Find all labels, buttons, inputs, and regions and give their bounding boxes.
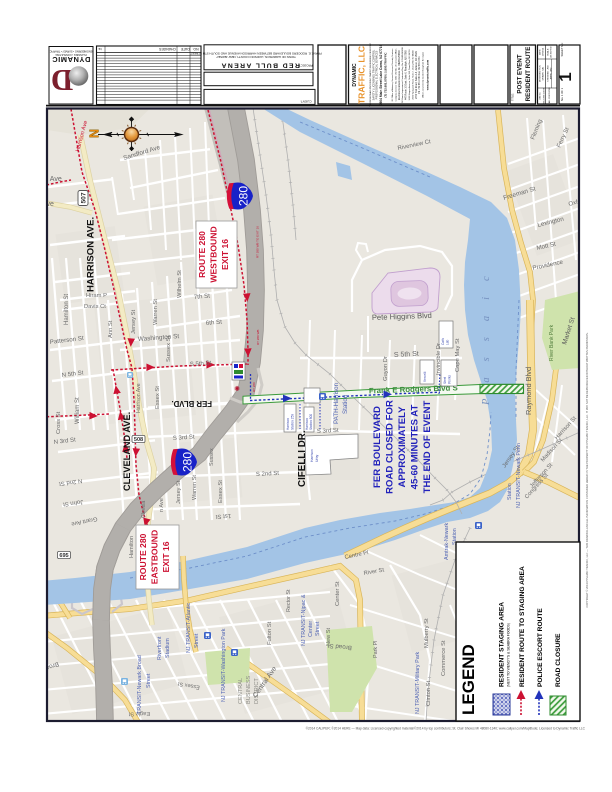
svg-text:Hiram P: Hiram P	[86, 293, 107, 299]
svg-text:THE END OF EVENT: THE END OF EVENT	[422, 400, 433, 493]
svg-text:POST EVENT: POST EVENT	[517, 54, 524, 93]
svg-text:n Ave: n Ave	[159, 498, 165, 512]
svg-text:TRAFFIC, LLC: TRAFFIC, LLC	[357, 46, 367, 104]
svg-text:Jersey St: Jersey St	[176, 480, 182, 504]
svg-text:River Bank Park: River Bank Park	[549, 324, 555, 361]
svg-text:Center: Center	[308, 621, 314, 637]
svg-text:NJ TRANSIT-Atlantic: NJ TRANSIT-Atlantic	[186, 602, 192, 653]
svg-text:280: 280	[236, 186, 250, 206]
svg-text:(T) 732.681.0760 | 1.800.TRA: (T) 732.681.0760 | 1.800.TRAFFIC	[384, 52, 388, 98]
svg-text:©2014 CALIPER; ©2014 HERE —: ©2014 CALIPER; ©2014 HERE — Map data: Li…	[306, 727, 586, 731]
svg-text:Fulton St: Fulton St	[267, 621, 273, 645]
svg-text:Vercelli: Vercelli	[423, 371, 427, 382]
svg-text:Park Pl: Park Pl	[373, 641, 379, 658]
svg-text:PATH-Harrison: PATH-Harrison	[333, 382, 340, 424]
svg-text:NJ Home Improvement Contractor: NJ Home Improvement Contractor Reg. No. …	[401, 46, 404, 102]
svg-text:CENTRAL: CENTRAL	[238, 678, 244, 704]
svg-text:FRANK E. RODGERS BOULEVARD BET: FRANK E. RODGERS BOULEVARD BETWEEN HARRI…	[190, 51, 322, 55]
svg-text:Street: Street	[315, 621, 321, 636]
svg-text:2013-089-C0078: 2013-089-C0078	[544, 87, 546, 104]
svg-text:Cross St: Cross St	[56, 411, 62, 434]
svg-text:Raymond Blvd: Raymond Blvd	[524, 367, 533, 415]
svg-text:Station 259: Station 259	[291, 414, 295, 430]
svg-text:APPROXIMATELY: APPROXIMATELY	[397, 406, 408, 488]
svg-text:S 3rd St: S 3rd St	[317, 428, 339, 435]
svg-text:DRAWN: SAL: DRAWN: SAL	[542, 66, 545, 80]
svg-text:S 5th St: S 5th St	[394, 351, 419, 359]
svg-text:RT 280 WB: RT 280 WB	[256, 330, 260, 345]
svg-text:Essex St: Essex St	[155, 386, 161, 409]
svg-text:Davis Ct: Davis Ct	[84, 304, 106, 310]
svg-text:RESIDENT STAGING AREA: RESIDENT STAGING AREA	[499, 602, 506, 687]
svg-text:Eagle St: Eagle St	[128, 710, 150, 717]
svg-text:Ann St: Ann St	[108, 320, 114, 338]
svg-text:NJ TRANSIT-Washington Park: NJ TRANSIT-Washington Park	[221, 628, 227, 702]
svg-text:POLICE ESCORT ROUTE: POLICE ESCORT ROUTE	[537, 608, 544, 687]
svg-text:Offices conveniently located t: Offices conveniently located throughout …	[422, 51, 425, 98]
svg-text:William St: William St	[75, 397, 81, 424]
svg-text:7th St: 7th St	[194, 293, 211, 301]
svg-text:FER BLVD.: FER BLVD.	[171, 399, 212, 408]
svg-text:Ph. 732.681.0760 Fax 732.681.: Ph. 732.681.0760 Fax 732.681.0761	[419, 56, 421, 94]
svg-text:Hamilton St: Hamilton St	[64, 294, 70, 325]
svg-text:EASTBOUND: EASTBOUND	[150, 530, 160, 584]
svg-text:Clinton St: Clinton St	[426, 680, 432, 706]
svg-text:ROUTE 280: ROUTE 280	[197, 231, 207, 278]
svg-text:No. 1 OF 1: No. 1 OF 1	[560, 87, 564, 101]
svg-text:Hamilton: Hamilton	[129, 536, 135, 558]
svg-text:ROAD CLOSED FOR: ROAD CLOSED FOR	[385, 400, 396, 494]
svg-text:Street: Street	[194, 633, 200, 648]
svg-text:RED BULL ARENA: RED BULL ARENA	[220, 62, 300, 69]
svg-text:EXIT 16: EXIT 16	[161, 541, 171, 572]
svg-text:JOB No:: JOB No:	[539, 91, 541, 100]
svg-text:TRANSIT-Newark Broad: TRANSIT-Newark Broad	[137, 655, 143, 714]
svg-text:(NEXT TO WENDY'S & SEABRA FOOD: (NEXT TO WENDY'S & SEABRA FOODS)	[507, 623, 511, 687]
svg-text:RESIDENT ROUTE TO STAGING AREA: RESIDENT ROUTE TO STAGING AREA	[519, 566, 526, 687]
svg-text:Center St: Center St	[335, 581, 341, 606]
svg-text:CLEVELAND AVE.: CLEVELAND AVE.	[122, 412, 132, 491]
svg-text:NJ TRANSIT-Newark Penn: NJ TRANSIT-Newark Penn	[516, 443, 522, 508]
svg-text:CLIENT:: CLIENT:	[300, 99, 311, 103]
svg-text:PLANNING • CONSULTING: PLANNING • CONSULTING	[55, 53, 86, 56]
svg-text:Station: Station	[507, 483, 513, 500]
svg-text:507: 507	[81, 192, 88, 203]
svg-text:Harrison: Harrison	[286, 418, 290, 430]
svg-text:Amtrak-Newark: Amtrak-Newark	[444, 523, 450, 560]
svg-text:Sussex: Sussex	[209, 448, 215, 466]
svg-text:Wilhelm St: Wilhelm St	[177, 270, 183, 298]
svg-text:CAD: C0078-PER: CAD: C0078-PER	[548, 87, 551, 105]
svg-text:AS NOTED: AS NOTED	[550, 46, 553, 58]
svg-text:Clevela: Clevela	[141, 501, 147, 518]
svg-text:Cape May St: Cape May St	[455, 338, 461, 372]
svg-text:✺: ✺	[234, 385, 240, 393]
svg-text:RESIDENT ROUTE: RESIDENT ROUTE	[525, 47, 532, 102]
svg-text:Riverfront: Riverfront	[157, 636, 163, 660]
svg-text:ROUTE 280: ROUTE 280	[138, 533, 148, 580]
svg-text:HARRISON AVE.: HARRISON AVE.	[86, 217, 97, 292]
svg-text:Jersey St: Jersey St	[131, 309, 137, 334]
svg-text:DISTRICT: DISTRICT	[254, 678, 260, 704]
svg-text:Commerce St: Commerce St	[441, 640, 447, 676]
svg-text:Warren St: Warren St	[192, 475, 198, 500]
svg-text:RT 280 WB TO EXIT 16: RT 280 WB TO EXIT 16	[256, 226, 260, 258]
svg-text:Works: Works	[448, 375, 452, 384]
svg-text:Sussex St: Sussex St	[166, 336, 172, 362]
svg-text:1904 Main Street Lake Como,: 1904 Main Street Lake Como, NJ 07719	[379, 44, 383, 105]
svg-text:S 2nd St: S 2nd St	[256, 471, 280, 478]
svg-text:1: 1	[556, 72, 575, 81]
svg-text:Warren St: Warren St	[153, 299, 159, 325]
svg-text:DESIGNED: MJC: DESIGNED: MJC	[539, 65, 541, 83]
svg-text:N: N	[88, 129, 102, 138]
svg-text:Passaic: Passaic	[481, 260, 492, 406]
svg-text:TITLE:: TITLE:	[511, 93, 515, 101]
svg-text:TOWN OF HARRISON, HUDSON COUNT: TOWN OF HARRISON, HUDSON COUNTY, NEW JER…	[216, 55, 296, 59]
svg-text:Harrison: Harrison	[310, 449, 314, 462]
svg-text:Invincible Dr: Invincible Dr	[436, 343, 442, 375]
svg-text:447 Route 10 East, Suite 6, Ra: 447 Route 10 East, Suite 6, Randolph, NJ…	[405, 49, 408, 99]
svg-text:ENGINEERING • SURVEY • TRAFFIC: ENGINEERING • SURVEY • TRAFFIC	[49, 50, 92, 53]
svg-text:SHEET No:: SHEET No:	[560, 42, 564, 56]
svg-text:Lab: Lab	[446, 339, 450, 345]
svg-text:Urby: Urby	[315, 455, 319, 462]
svg-text:1433 Hooper Avenue, Suite 335,: 1433 Hooper Avenue, Suite 335, Toms Rive…	[408, 49, 411, 101]
svg-text:LEGEND: LEGEND	[459, 644, 478, 715]
svg-text:Street: Street	[146, 673, 152, 688]
svg-text:APPR: JMD: APPR: JMD	[550, 67, 553, 79]
svg-text:Station: Station	[342, 394, 349, 414]
svg-text:Guyon Dr: Guyon Dr	[383, 356, 389, 381]
svg-text:45-60 MINUTES AT: 45-60 MINUTES AT	[410, 404, 421, 489]
svg-text:COPYRIGHT © 2014 DYNAMIC TRAFF: COPYRIGHT © 2014 DYNAMIC TRAFFIC, LLC — …	[585, 332, 589, 608]
svg-text:CHANGES: CHANGES	[158, 47, 176, 51]
svg-text:ROAD CLOSURE: ROAD CLOSURE	[555, 633, 562, 687]
svg-text:Steel: Steel	[443, 376, 447, 384]
svg-text:Electrical Contractor License: Electrical Contractor License No. 34EB01…	[398, 49, 401, 100]
svg-text:NJ TRANSIT-Military Park: NJ TRANSIT-Military Park	[415, 651, 421, 714]
svg-text:Essex St: Essex St	[218, 480, 224, 503]
svg-text:SCALE:: SCALE:	[546, 48, 549, 56]
svg-text:Station 800: Station 800	[309, 414, 313, 430]
svg-text:DATE: DATE	[180, 47, 190, 51]
svg-text:1st St: 1st St	[215, 512, 231, 519]
svg-text:2091 Springdale Road, Suite 2,: 2091 Springdale Road, Suite 2, Cherry Hi…	[411, 50, 414, 100]
svg-text:NJ TRANSIT-Njpac &: NJ TRANSIT-Njpac &	[301, 594, 307, 646]
svg-text:2370 York Road, Suite A-4, Jam: 2370 York Road, Suite A-4, Jamison, PA 1…	[415, 50, 418, 99]
svg-text:280: 280	[180, 452, 194, 472]
svg-text:NO.: NO.	[193, 47, 199, 51]
svg-text:EXIT 16: EXIT 16	[220, 239, 230, 270]
svg-text:695: 695	[59, 553, 68, 559]
svg-text:RT 280: RT 280	[252, 382, 256, 392]
svg-text:BUSINESS: BUSINESS	[246, 675, 252, 704]
svg-text:DATE:: DATE:	[538, 48, 541, 55]
svg-text:Harrison Ave: Harrison Ave	[136, 383, 142, 413]
svg-text:10/06/14: 10/06/14	[543, 47, 545, 56]
svg-text:NJ Office of Attorney General: NJ Office of Attorney General Licensed S…	[391, 49, 394, 102]
svg-text:Company License No. 1262 | NJ: Company License No. 1262 | NJ Div. of Co…	[394, 49, 397, 102]
svg-text:508: 508	[134, 437, 143, 443]
svg-text:6th St: 6th St	[206, 319, 223, 327]
svg-text:FER BOULEVARD: FER BOULEVARD	[372, 406, 383, 488]
svg-text:www.dynamictraffic.com: www.dynamictraffic.com	[426, 59, 430, 90]
svg-text:CHECKED: JMD: CHECKED: JMD	[547, 65, 549, 82]
svg-text:Stadium: Stadium	[165, 638, 171, 658]
svg-text:Rector St: Rector St	[286, 589, 292, 612]
svg-text:WESTBOUND: WESTBOUND	[209, 226, 219, 282]
svg-text:CIFELLI DR.: CIFELLI DR.	[297, 430, 308, 487]
svg-text:Mulberry St: Mulberry St	[424, 618, 430, 648]
